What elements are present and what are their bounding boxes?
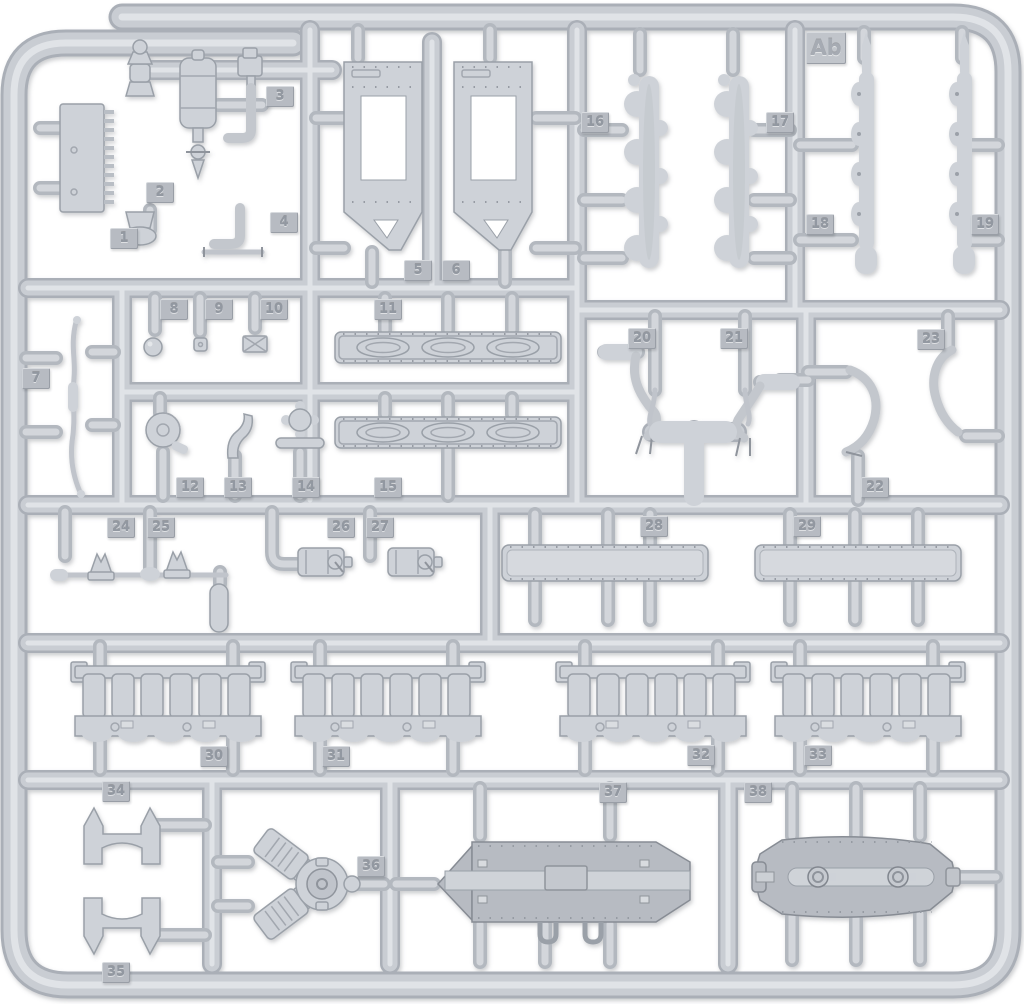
part-16-manifold: [624, 74, 668, 268]
part-35-mount-bracket: [84, 898, 160, 954]
part-31-engine-block: [291, 662, 485, 742]
part-tag-25: 25: [147, 517, 175, 538]
part-tag-9: 9: [205, 299, 233, 320]
part-2-fuel-tank: [180, 50, 216, 178]
part-tag-13: 13: [224, 477, 252, 498]
part-tag-34: 34: [102, 781, 130, 802]
part-28-rivet-rail: [502, 545, 708, 581]
part-36-radial-engine: [252, 827, 360, 941]
part-tag-24: 24: [107, 517, 135, 538]
part-tag-14: 14: [292, 477, 320, 498]
part-33-engine-block: [771, 662, 965, 742]
part-17-manifold: [714, 74, 758, 268]
sprue-drawing: [0, 0, 1024, 1004]
part-19-side-strip: [949, 32, 975, 274]
part-15-hatch-plate: [335, 417, 561, 448]
part-7-tow-bar: [68, 316, 85, 498]
part-tag-15: 15: [374, 477, 402, 498]
part-tag-27: 27: [366, 517, 394, 538]
part-tag-10: 10: [260, 299, 288, 320]
part-tag-29: 29: [793, 516, 821, 537]
sprue-photo: 1234567891011121314151617181920212223242…: [0, 0, 1024, 1004]
part-tag-19: 19: [971, 214, 999, 235]
part-tag-35: 35: [102, 962, 130, 983]
part-4-elbow-pipe: [204, 208, 262, 257]
part-tag-1: 1: [110, 228, 138, 249]
part-tag-31: 31: [322, 746, 350, 767]
part-5-bracket-plate: [344, 62, 422, 250]
part-38-cylinder-head: [752, 837, 960, 917]
part-20-21-pedal-levers: [598, 344, 800, 506]
part-tag-20: 20: [628, 328, 656, 349]
part-tag-2: 2: [146, 182, 174, 203]
part-tag-17: 17: [766, 112, 794, 133]
part-tag-4: 4: [270, 212, 298, 233]
part-1-radiator: [60, 40, 156, 245]
part-tag-16: 16: [581, 112, 609, 133]
part-tag-33: 33: [804, 745, 832, 766]
sprue: [14, 17, 1008, 985]
part-6-bracket-plate: [454, 62, 532, 250]
part-tag-32: 32: [687, 745, 715, 766]
part-tag-6: 6: [442, 260, 470, 281]
part-tag-23: 23: [917, 329, 945, 350]
part-tag-37: 37: [599, 782, 627, 803]
part-tag-21: 21: [720, 328, 748, 349]
part-tag-11: 11: [374, 299, 402, 320]
part-30-engine-block: [71, 662, 265, 742]
part-32-engine-block: [556, 662, 750, 742]
part-tag-7: 7: [22, 368, 50, 389]
part-9-small-cap: [194, 338, 207, 351]
part-24-25-tow-hooks: [50, 552, 228, 632]
part-tag-Ab: Ab: [806, 32, 846, 64]
part-27-latch-cylinder: [388, 548, 442, 576]
part-tag-8: 8: [160, 299, 188, 320]
part-tag-5: 5: [404, 260, 432, 281]
part-tag-22: 22: [861, 477, 889, 498]
part-26-latch-cylinder: [298, 548, 352, 576]
part-10-hatch-box: [243, 336, 267, 352]
part-23-lever: [934, 350, 958, 432]
part-tag-26: 26: [327, 517, 355, 538]
part-34-mount-bracket: [84, 808, 160, 864]
part-tag-3: 3: [266, 86, 294, 107]
part-tag-38: 38: [744, 782, 772, 803]
part-tag-28: 28: [640, 516, 668, 537]
part-11-hatch-plate: [335, 332, 561, 363]
part-tag-30: 30: [200, 746, 228, 767]
part-tag-18: 18: [806, 214, 834, 235]
part-tag-36: 36: [357, 856, 385, 877]
part-29-rivet-rail: [755, 545, 961, 581]
part-8-ball-knob: [144, 338, 162, 356]
part-tag-12: 12: [176, 477, 204, 498]
part-22-lever: [846, 370, 876, 456]
